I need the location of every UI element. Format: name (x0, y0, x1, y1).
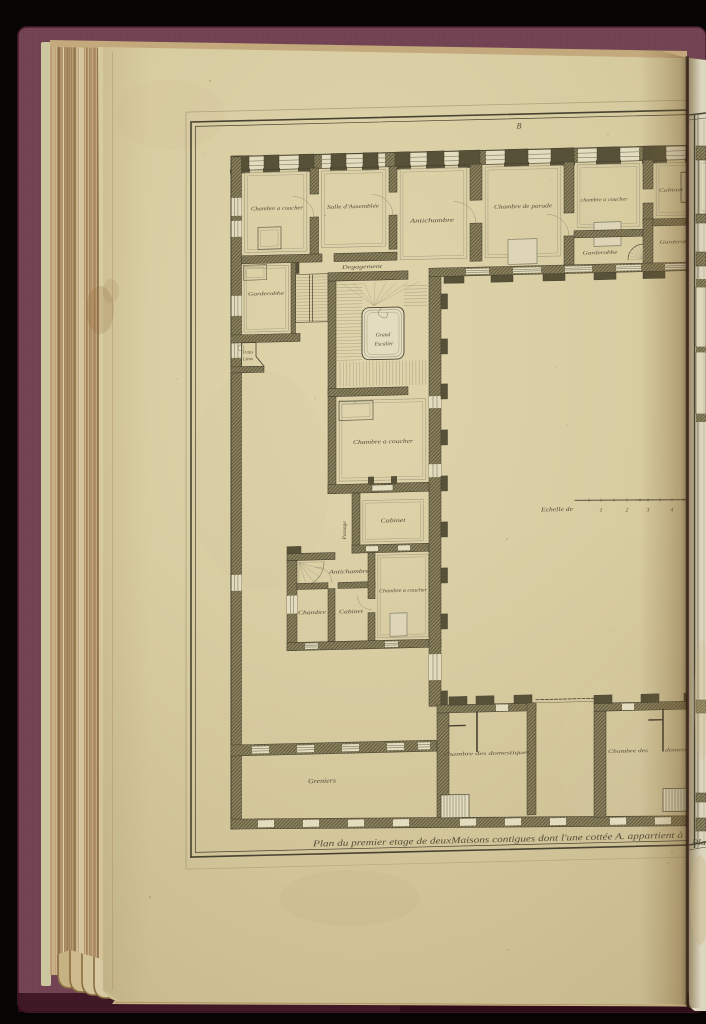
svg-text:Chambre a coucher: Chambre a coucher (251, 205, 304, 212)
svg-text:1: 1 (600, 508, 603, 514)
svg-text:Escalier: Escalier (374, 341, 394, 347)
svg-text:Chambre a coucher: Chambre a coucher (379, 587, 427, 594)
svg-text:Cabinet: Cabinet (380, 518, 406, 525)
svg-text:Chambre: Chambre (298, 610, 327, 617)
svg-text:Garderobbe: Garderobbe (248, 291, 285, 298)
svg-text:Pla: Pla (691, 838, 706, 847)
svg-text:Grand: Grand (376, 332, 391, 338)
svg-text:Echelle de: Echelle de (540, 507, 574, 514)
svg-text:2: 2 (626, 507, 629, 513)
svg-text:Cabinet: Cabinet (339, 609, 364, 616)
svg-text:Degagement: Degagement (341, 264, 383, 271)
svg-text:Petits: Petits (242, 350, 254, 355)
svg-text:Lieux: Lieux (242, 356, 253, 361)
svg-text:B: B (516, 122, 521, 131)
svg-text:Antichambre: Antichambre (328, 569, 370, 576)
svg-text:Passage: Passage (342, 521, 348, 541)
svg-text:chambre a coucher: chambre a coucher (581, 196, 629, 203)
svg-text:Salle d'Assemblée: Salle d'Assemblée (327, 203, 380, 210)
svg-text:Garderobbe: Garderobbe (582, 250, 618, 257)
svg-text:Antichambre: Antichambre (409, 218, 455, 225)
svg-text:Greniers: Greniers (308, 778, 337, 786)
